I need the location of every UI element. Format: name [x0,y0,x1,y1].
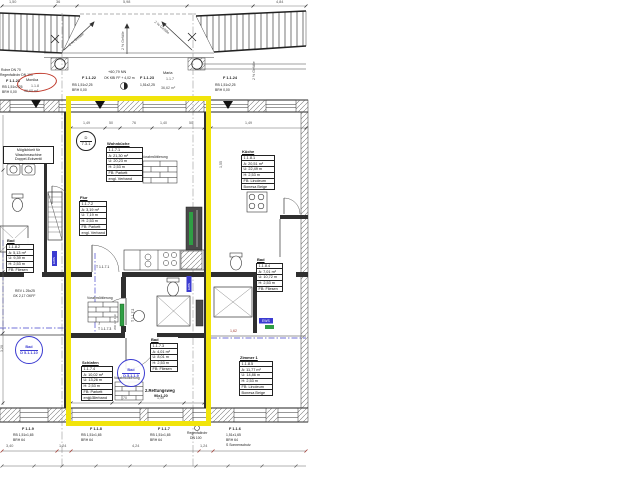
detail-circle-d731: D 7.3.1 [76,131,96,151]
shaft-block [186,207,202,250]
ews-label: EWS [53,257,57,264]
window-sill: BRH 0,00 [2,90,17,94]
dim-label: 1,49 [83,121,90,125]
room-card-bad-rechts: Bad 1.1.8.4 A: 7,01 m² U: 10,72 m H: 2,5… [256,257,283,292]
revision-note: GK 2,17 OKFF [13,294,35,298]
room-row: engl. Verband [107,176,142,181]
level-label: OK KBI FF + 4,02 m [104,76,135,80]
washing-machine-note: Möglichkeit für Waschmaschine Doppel-Eck… [3,146,54,164]
unit-bath-fixtures [134,278,204,326]
circle-bottom-text: D 5.1.1.10 [20,351,38,355]
window-label: F 1.1.6 [229,427,241,432]
window-size: RB 1,51x1,65 [13,433,34,437]
escape-route-label: 2.Rettungsweg [145,388,175,393]
room-row: engl. Verband [80,230,106,235]
kitchen-counter [124,250,204,270]
window-size: RB 1,51x1,65 [81,433,102,437]
outer-wall-far-right [301,112,308,408]
window-label: F 1.1.9 [22,427,34,432]
note-line: Doppel-Eckventil [6,157,51,162]
room-row: Bonesa Beige [240,390,272,395]
window-sill: BRH 0,00 [72,88,87,92]
room-card-schlafen: Schlafen 1.1.7.4 A: 10,02 m² U: 13,26 m … [81,360,113,401]
wc-icon [12,194,23,198]
dim-label: 3,40 [6,444,13,449]
door-arc [284,198,300,214]
room-row: Bonesa Beige [242,184,274,189]
window-label: F 1.1.8 [90,427,102,432]
room-row: FB: Fliesen [7,268,33,273]
dim-label: 5,98 [123,0,130,5]
roof-drain-left [51,58,68,70]
vorab-label: Vorabmöblierung [114,376,140,380]
gutter-lines [44,53,306,69]
unit-id-monika: 1.1.8 [31,84,39,88]
radiator-icon [196,300,203,326]
dim-label: 70 [123,396,127,400]
window-sill: BRH 0,00 [215,88,230,92]
level-label: +60,79 NN [108,70,126,75]
dim-label: 4,24 [132,444,139,449]
duct-label: WD UP 119 [114,314,118,330]
dim-label: 1,24 [59,444,66,449]
floorplan-drawing [0,0,622,480]
bottom-exterior-wall [0,408,308,422]
left-neighbour-wall-v [44,160,47,272]
revision-note: REV L 25x25 [15,289,35,293]
room-title: Flur [80,195,107,200]
roof-band-left [0,13,80,53]
dim-label: 50 [109,121,113,125]
parquet-sample-wohnkueche [143,161,177,183]
vorab-label: Vorabmöblierung [142,155,168,159]
room-title: Bad [151,337,178,342]
room-title: Schlafen [82,360,113,365]
right-green-strip [265,325,274,329]
door-label: T 1.1.7.2 [131,309,135,322]
window-label: F 1.1.24 [223,76,237,81]
unit-area-monika: 36,60 m² [24,89,38,93]
window-sill: BRH 64 [150,438,162,442]
floorplan-page: 1,50 36 5,98 4,84 2 % Gefälle 2 % Gefäll… [0,0,622,480]
room-row: engl. Verband [82,395,112,400]
rainpipe-label: Regenfallrohr [187,431,207,435]
window-sill: BRH 64 [13,438,25,442]
dim-label: 3,20 [0,345,4,352]
roof-drain-right [188,58,205,70]
window-label: F 1.1.22 [82,76,96,81]
circle-top-text: Bad [25,345,32,349]
room-title: Bad [7,238,34,243]
door-label: T 1.1.7.1 [96,265,109,269]
rainpipe-symbol [195,426,200,431]
wc-icon [167,278,179,282]
window-label: F 1.1.7 [158,427,170,432]
unit-name-maria: Maria [163,71,173,76]
room-card-wohnkueche: Wohnküche 1.1.7.1 A: 21,30 m² U: 20,23 m… [106,141,143,182]
room-card-bad-links: Bad 1.1.8.2 A: 5,13 m² U: 9,39 m H: 2,53… [6,238,34,273]
dim-label: 4,84 [276,0,283,5]
circle-top-text: D [85,136,88,140]
right-neighbour-wall-stub [280,215,308,219]
dim-label: 1,49 [245,121,252,125]
ews-label: EWS [188,283,192,290]
dim-label: 1,55 [219,161,223,168]
room-title: Wohnküche [107,141,143,146]
shaft-green-strip [120,304,124,326]
room-card-bad-unit: Bad 1.1.7.3 A: 4,01 m² U: 8,01 m H: 2,53… [150,337,178,372]
window-size: RB 1,51x2,25 [2,85,23,89]
slope-label: 2 % Gefälle [252,61,256,80]
room-title: Bad [257,257,283,262]
roof-band-right [196,11,306,52]
room-card-flur: Flur 1.1.7.2 A: 3,19 m² U: 7,19 m H: 2,5… [79,195,107,236]
dim-label: 36 [56,0,60,5]
room-title: Küche [242,149,275,154]
circle-bottom-text: 7.3.1 [82,142,91,146]
circle-top-text: Bad [127,368,134,372]
dim-label: 1,40 [88,396,95,400]
window-sill: BRH 64 [81,438,93,442]
window-size: RB 1,51x2,25 [215,83,236,87]
door-circle-bad-left: Bad D 5.1.1.10 [15,336,43,364]
window-sill: BRH 64 [226,438,238,442]
pipe-note: Rohre DN 70 [1,68,21,72]
bottom-dimension-lines [1,450,308,468]
room-row: FB: Fliesen [151,367,177,372]
dim-label: 1,24 [200,444,207,449]
window-size: 1,51x2,25 [140,83,155,87]
unit-id-maria: 1.1.7 [166,77,174,81]
window-size: RB 1,51x1,65 [150,433,171,437]
ews-label: EWS [262,319,270,323]
dim-label: 1,40 [160,121,167,125]
window-extra: S Sonnenschutz [226,443,251,447]
room-title: Zimmer 1 [240,355,273,360]
door-circle-bad-unit: Bad D 5.1.1.9 [117,359,145,387]
dim-label: 1,62 [230,329,237,333]
window-label: F 1.1.23 [140,76,154,81]
dim-label: 1,50 [9,0,16,5]
top-dimension-line [1,5,308,8]
room-card-zimmer1: Zimmer 1 1.1.8.5 A: 11,77 m² U: 14,86 m … [239,355,273,396]
door-label: T 1.1.7.3 [98,327,111,331]
vorab-label: Vorabmöblierung [87,296,113,300]
room-card-kueche: Küche 1.1.8.1 A: 20,51 m² U: 22,49 m H: … [241,149,275,190]
level-marker-icon [121,83,128,90]
unit-name-monika: Monika [26,78,38,83]
window-size: RB 1,51x2,25 [72,83,93,87]
dim-label: 50 [189,121,193,125]
window-label: F 1.1.21 [6,79,20,84]
slope-arrows [64,22,192,54]
room-row: FB: Fliesen [257,287,282,292]
dim-label: 76 [132,121,136,125]
window-size: 1,51x1,65 [226,433,241,437]
unit-area-maria: 36,62 m² [161,86,175,90]
slope-label: 2 % Gefälle [121,31,125,50]
dim-label: 1,40 [157,396,164,400]
rainpipe-label: DN 100 [190,436,202,440]
